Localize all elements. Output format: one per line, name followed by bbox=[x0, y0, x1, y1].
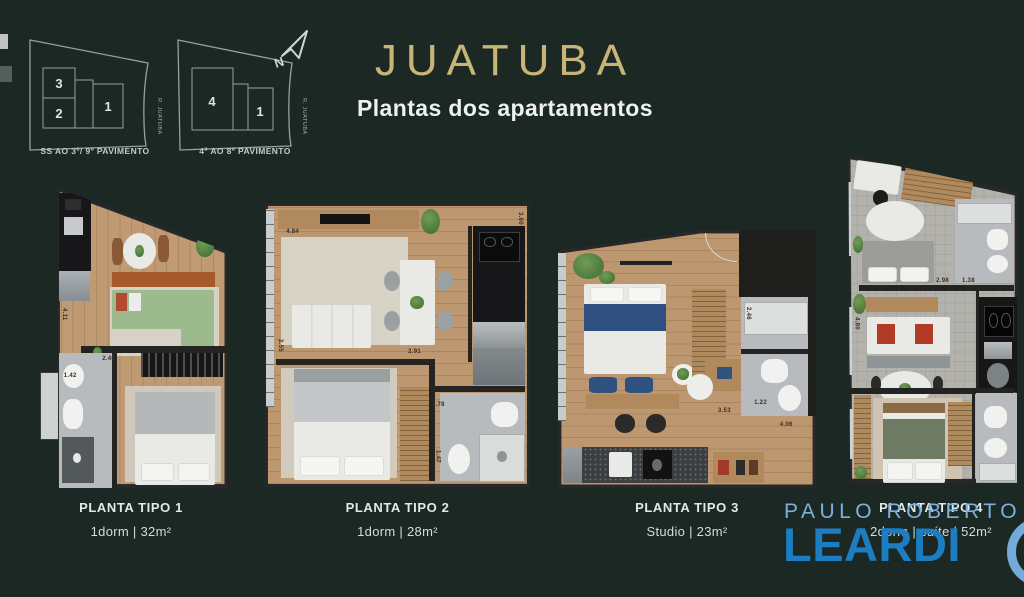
bathroom bbox=[741, 297, 808, 416]
dimension: 2.55 bbox=[277, 339, 283, 352]
poster: 3 2 1 R. JUATUBA SS AO 3º/ 9º PAVIMENTO … bbox=[0, 0, 1024, 597]
window-wall bbox=[558, 253, 566, 421]
floorplan-tipo-2: 4.84 3.60 2.55 2.91 1.78 1.47 bbox=[265, 203, 530, 487]
window-wall bbox=[848, 409, 852, 460]
dimension: 4.06 bbox=[780, 422, 793, 428]
bench bbox=[625, 377, 653, 392]
sink bbox=[987, 255, 1008, 274]
fridge bbox=[59, 271, 90, 301]
kitchen-counter bbox=[979, 297, 1017, 392]
stool bbox=[646, 414, 667, 432]
round-lounger bbox=[866, 201, 924, 242]
dimension: 1.78 bbox=[432, 402, 445, 408]
dimension: 4.84 bbox=[286, 229, 299, 235]
shower bbox=[744, 302, 808, 335]
toilet bbox=[63, 399, 83, 429]
dimension: 2.46 bbox=[745, 307, 751, 320]
interior-wall bbox=[859, 285, 1014, 291]
sofa-chaise bbox=[181, 290, 214, 353]
chair bbox=[384, 311, 400, 331]
dimension: 4.11 bbox=[61, 308, 67, 321]
kitchen-counter bbox=[563, 447, 707, 483]
shower bbox=[62, 437, 94, 483]
plant bbox=[196, 236, 213, 257]
north-arrow-icon: N bbox=[272, 31, 307, 71]
watermark-brand: LEARDI bbox=[783, 520, 1024, 569]
edge-artifact bbox=[0, 66, 12, 82]
sideboard bbox=[866, 297, 938, 312]
dimension: 1.22 bbox=[754, 400, 767, 406]
shower bbox=[957, 203, 1012, 224]
plant bbox=[421, 209, 440, 235]
interior-wall bbox=[112, 353, 117, 488]
interior-wall bbox=[808, 297, 816, 416]
plan-spec: 1dorm | 28m² bbox=[265, 524, 530, 539]
interior-wall bbox=[276, 359, 430, 365]
bed bbox=[584, 284, 667, 374]
interior-wall bbox=[429, 359, 434, 481]
sink bbox=[448, 444, 470, 474]
bench bbox=[589, 377, 617, 392]
dining-table bbox=[400, 260, 434, 345]
edge-artifact bbox=[0, 34, 8, 49]
window-wall bbox=[266, 209, 274, 408]
window-wall bbox=[848, 307, 852, 375]
interior-wall bbox=[81, 346, 227, 354]
balcony bbox=[40, 372, 60, 440]
floorplan-tipo-1: 4.11 2.40 1.42 bbox=[35, 188, 227, 488]
dimension: 1.38 bbox=[962, 278, 975, 284]
unit-number: 2 bbox=[55, 106, 62, 121]
cushion bbox=[116, 293, 128, 311]
sofa-bench bbox=[867, 356, 950, 368]
street-label: R. JUATUBA bbox=[156, 98, 162, 135]
unit-number: 4 bbox=[208, 94, 216, 109]
toilet bbox=[984, 406, 1007, 428]
diagram-caption: 4º AO 8º PAVIMENTO bbox=[175, 146, 315, 156]
dimension: 4.80 bbox=[854, 317, 860, 330]
bar-table bbox=[586, 394, 679, 409]
sink bbox=[984, 438, 1007, 458]
stool bbox=[615, 414, 636, 432]
tv-rack bbox=[278, 210, 418, 228]
plant bbox=[853, 236, 863, 253]
bed bbox=[294, 369, 389, 480]
desk-chair bbox=[687, 374, 713, 400]
diagram-caption: SS AO 3º/ 9º PAVIMENTO bbox=[25, 146, 165, 156]
bed bbox=[883, 403, 945, 482]
sofa bbox=[292, 305, 372, 348]
kitchen-counter bbox=[473, 226, 525, 323]
plan-name: PLANTA TIPO 3 bbox=[558, 500, 816, 515]
dimension: 2.98 bbox=[936, 278, 949, 284]
plan-label-2: PLANTA TIPO 2 1dorm | 28m² bbox=[265, 500, 530, 539]
interior-wall bbox=[468, 226, 473, 362]
dining-table bbox=[123, 233, 156, 269]
sofa bbox=[867, 317, 950, 354]
unit-number: 1 bbox=[104, 99, 111, 114]
side-shelf bbox=[713, 452, 765, 483]
sideboard bbox=[112, 272, 216, 287]
kitchen-sink bbox=[473, 322, 525, 348]
bathroom bbox=[976, 393, 1017, 483]
toilet bbox=[491, 402, 518, 427]
fridge bbox=[473, 348, 525, 385]
unit-number: 3 bbox=[55, 76, 62, 91]
building-diagram-upper-floors: 4 1 N R. JUATUBA bbox=[170, 28, 320, 163]
plant bbox=[599, 271, 614, 284]
plan-label-3: PLANTA TIPO 3 Studio | 23m² bbox=[558, 500, 816, 539]
page-subtitle: Plantas dos apartamentos bbox=[330, 95, 680, 122]
bathroom bbox=[440, 393, 525, 481]
toilet bbox=[987, 229, 1008, 250]
dimension: 1.42 bbox=[64, 373, 77, 379]
dimension: 1.47 bbox=[435, 450, 441, 463]
side-shelf bbox=[948, 402, 972, 466]
cushion bbox=[129, 293, 141, 311]
interior-wall bbox=[435, 386, 525, 392]
shower bbox=[979, 463, 1016, 481]
plan-spec: Studio | 23m² bbox=[558, 524, 816, 539]
dimension: 2.40 bbox=[102, 356, 115, 362]
wardrobe bbox=[400, 388, 429, 482]
dimension: 3.53 bbox=[718, 408, 731, 414]
service-core bbox=[739, 230, 816, 297]
unit-number: 1 bbox=[256, 104, 263, 119]
dimension: 3.60 bbox=[517, 212, 523, 225]
svg-text:N: N bbox=[272, 54, 286, 71]
plan-label-1: PLANTA TIPO 1 1dorm | 32m² bbox=[35, 500, 227, 539]
kitchen-counter bbox=[59, 193, 91, 271]
chair bbox=[437, 311, 453, 331]
page-title: JUATUBA bbox=[330, 36, 680, 86]
building-diagram-lower-floors: 3 2 1 R. JUATUBA bbox=[20, 28, 170, 163]
plan-name: PLANTA TIPO 2 bbox=[265, 500, 530, 515]
floorplan-tipo-4: 4.80 2.98 1.38 bbox=[845, 155, 1017, 493]
toilet bbox=[761, 359, 788, 383]
plan-spec: 1dorm | 32m² bbox=[35, 524, 227, 539]
closet bbox=[141, 353, 224, 377]
sink bbox=[778, 385, 801, 411]
floorplan-tipo-3: 2.46 1.22 3.53 4.06 bbox=[558, 230, 816, 488]
dimension: 2.91 bbox=[408, 349, 421, 355]
wall-rack bbox=[620, 261, 672, 265]
shower bbox=[479, 434, 525, 482]
street-label: R. JUATUBA bbox=[301, 98, 307, 135]
chair bbox=[112, 238, 124, 265]
plan-name: PLANTA TIPO 1 bbox=[35, 500, 227, 515]
chair bbox=[158, 235, 170, 262]
bed bbox=[862, 241, 934, 283]
bed bbox=[135, 392, 216, 485]
bathroom bbox=[955, 199, 1013, 284]
window-wall bbox=[847, 182, 851, 256]
